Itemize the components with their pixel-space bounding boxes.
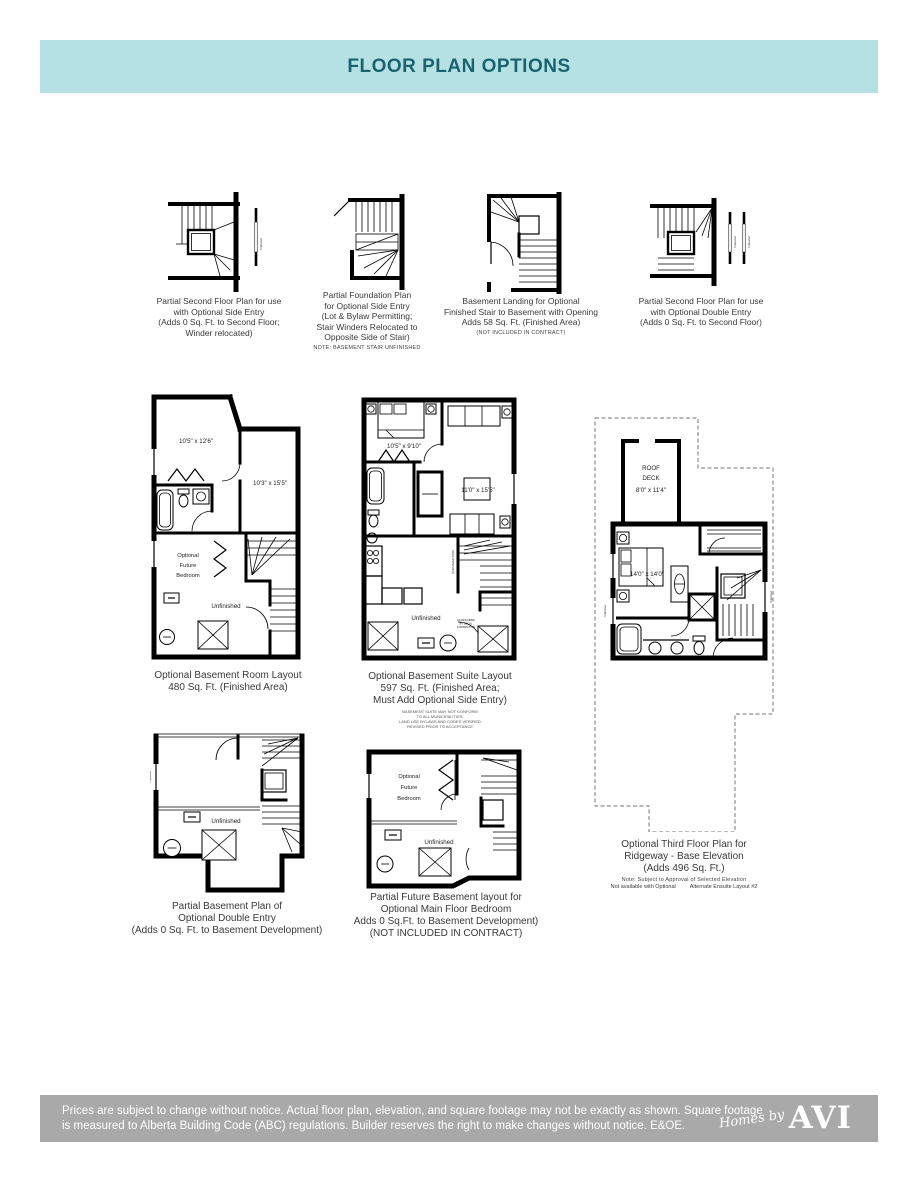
- stair-winders: [491, 197, 519, 222]
- logo-serif-text: AVI: [789, 1100, 852, 1136]
- disclaimer: Prices are subject to change without not…: [62, 1104, 763, 1134]
- room-dim-label: 14'0" x 14'0": [630, 571, 664, 578]
- page-title: FLOOR PLAN OPTIONS: [347, 56, 570, 78]
- floor-drain-icon: [160, 630, 175, 645]
- caption-plan-a: Partial Second Floor Plan for use with O…: [139, 296, 299, 338]
- plan-drawing-second-floor-double-entry: Optional Optional: [650, 198, 755, 286]
- room-dim-label: 10'5" x 9'10": [387, 443, 421, 450]
- stairs: [466, 758, 519, 870]
- svg-text:Optional: Optional: [769, 591, 773, 603]
- svg-text:Optional: Optional: [150, 771, 152, 783]
- plan-drawing-basement-landing: [483, 192, 571, 294]
- partition: [369, 821, 457, 824]
- third-floor-note-1: Note: Subject to Approval of Selected El…: [594, 877, 774, 884]
- svg-text:ROOF: ROOF: [642, 465, 660, 472]
- stairs: [246, 535, 298, 655]
- bed-icon: [378, 402, 424, 438]
- unfinished-label: Unfinished: [211, 603, 241, 610]
- room-dim-label: 10'3" x 15'5": [253, 480, 287, 487]
- stair-winders: [696, 208, 712, 238]
- room-dim-label: 11'0" x 15'5": [461, 487, 494, 494]
- toilet-icon: [178, 489, 189, 507]
- bifold-closet-doors: [168, 469, 204, 481]
- stair-winders: [214, 222, 234, 276]
- plan-drawing-basement-room-layout: Optional 10'5" x 12'6" 10'3" x 15'5" Opt…: [150, 393, 310, 661]
- svg-text:Future: Future: [401, 785, 418, 791]
- svg-text:Bedroom: Bedroom: [397, 796, 421, 802]
- unfinished-label: Unfinished: [424, 839, 454, 846]
- bed-icon: [619, 548, 663, 586]
- door-swing: [192, 511, 212, 531]
- optional-label: Optional: [747, 236, 751, 248]
- svg-text:8'0" x 11'4": 8'0" x 11'4": [636, 487, 666, 494]
- plan-drawing-future-basement-layout: Optional Optional Future Bedroom Unfinis…: [365, 748, 523, 890]
- caption-plan-b: Partial Foundation Plan for Optional Sid…: [287, 290, 447, 352]
- third-floor-note-2: Not available with OptionalAlternate Ens…: [594, 884, 774, 891]
- door-swing: [466, 848, 469, 870]
- window-marker: Optional: [365, 774, 372, 798]
- optional-label: Optional: [733, 236, 737, 248]
- skylight-shaft-icon: [689, 594, 715, 620]
- caption-third-floor: Optional Third Floor Plan for Ridgeway -…: [594, 839, 774, 891]
- toilet-icon: [368, 510, 379, 527]
- caption-double-entry-basement: Partial Basement Plan of Optional Double…: [127, 901, 327, 937]
- caption-plan-d: Partial Second Floor Plan for use with O…: [621, 296, 781, 328]
- window-well-icon: [164, 593, 179, 603]
- open-edge: [158, 734, 300, 737]
- sofa-icon: [448, 406, 512, 426]
- kitchen-counter: [364, 546, 422, 604]
- tub-icon: [157, 490, 173, 530]
- caption-basement-suite-layout: Optional Basement Suite Layout 597 Sq. F…: [350, 671, 530, 729]
- optional-door-marker: Optional: [255, 208, 263, 266]
- stairs: [717, 568, 765, 640]
- door-swing: [424, 444, 442, 462]
- svg-text:Optional: Optional: [603, 605, 607, 617]
- footer-band: Prices are subject to change without not…: [40, 1095, 878, 1142]
- vanity-sinks-icon: [643, 640, 689, 654]
- svg-text:JURISDICTION: JURISDICTION: [457, 625, 475, 629]
- floor-drain-icon: [440, 635, 456, 651]
- furnace-icon: [368, 622, 398, 650]
- floor-drain-icon: [164, 840, 181, 857]
- window-well-icon: [184, 812, 200, 822]
- plan-b-note: NOTE: BASEMENT STAIR UNFINISHED: [287, 345, 447, 352]
- furnace-icon-2: [478, 626, 508, 652]
- dresser-icon: [671, 566, 688, 602]
- svg-text:AS REQUIRED: AS REQUIRED: [457, 618, 475, 622]
- svg-text:Optional: Optional: [177, 553, 199, 559]
- suite-fine-print: BASEMENT SUITE MAY NOT CONFORM TO ALL MU…: [350, 709, 530, 729]
- stair-note: UNFINISHED STAIR: [451, 550, 455, 574]
- unfinished-label: Unfinished: [411, 615, 441, 622]
- furnace-icon: [198, 621, 228, 649]
- furnace-icon: [419, 848, 451, 876]
- roof-deck: ROOF DECK 8'0" x 11'4": [623, 439, 679, 526]
- plan-drawing-second-floor-side-entry: Optional: [168, 192, 272, 292]
- laundry-shelves: [707, 530, 761, 551]
- sink-icon: [193, 489, 209, 504]
- plan-drawing-double-entry-basement: Optional Unfinished: [150, 728, 310, 898]
- caption-future-basement: Partial Future Basement layout for Optio…: [351, 892, 541, 940]
- plan-drawing-third-floor-ridgeway: ROOF DECK 8'0" x 11'4" 14'0" x 14'0": [585, 408, 785, 832]
- svg-text:Optional: Optional: [517, 483, 518, 495]
- svg-text:DECK: DECK: [642, 475, 660, 482]
- stair-landing: [519, 216, 539, 234]
- homes-by-avi-logo: Homes by AVI: [719, 1100, 852, 1136]
- svg-text:BY LOCAL: BY LOCAL: [460, 622, 473, 626]
- plan-drawing-foundation-side-entry: [322, 194, 414, 290]
- door-swing: [491, 242, 513, 266]
- window-marker: Optional: [150, 764, 159, 790]
- plan-drawing-basement-suite-layout: Optional: [360, 396, 518, 662]
- header-band: FLOOR PLAN OPTIONS: [40, 40, 878, 93]
- bifold-closet-doors: [214, 541, 226, 577]
- door-swing: [216, 738, 238, 760]
- toilet-icon: [693, 636, 705, 655]
- svg-text:Future: Future: [180, 563, 197, 569]
- door-swing: [709, 538, 725, 554]
- stair-winders: [358, 250, 398, 276]
- bifold-closet-doors: [439, 760, 453, 800]
- bifold-closet-doors: [378, 450, 410, 462]
- stairs: [262, 738, 302, 852]
- window-well-icon: [385, 830, 401, 840]
- optional-door-marker-2: Optional: [743, 212, 751, 264]
- window-marker: Optional: [511, 474, 518, 504]
- stair-treads: [356, 200, 392, 232]
- stair-treads: [519, 240, 557, 282]
- stair-landing: [356, 234, 398, 250]
- partition: [156, 807, 260, 810]
- unfinished-label: Unfinished: [211, 818, 241, 825]
- room-dim-label: 10'5" x 12'6": [179, 438, 213, 445]
- caption-basement-room-layout: Optional Basement Room Layout 480 Sq. Ft…: [138, 670, 318, 694]
- optional-door-marker-1: Optional: [729, 212, 737, 264]
- floor-plan-options-page: FLOOR PLAN OPTIONS Optional Partial Seco…: [0, 0, 918, 1188]
- optional-label: Optional: [259, 238, 263, 250]
- tub-icon: [367, 468, 384, 504]
- furnace-icon: [202, 830, 236, 860]
- door-swing: [222, 463, 240, 481]
- floor-drain-icon: [377, 856, 393, 872]
- loveseat-icon: [450, 514, 510, 534]
- door-swing: [246, 607, 268, 629]
- tub-icon: [617, 624, 641, 654]
- plan-c-note: (NOT INCLUDED IN CONTRACT): [431, 330, 611, 337]
- caption-plan-c: Basement Landing for Optional Finished S…: [431, 296, 611, 337]
- window-well-icon: [418, 638, 434, 648]
- svg-text:Bedroom: Bedroom: [176, 573, 200, 579]
- logo-script-text: Homes by: [718, 1108, 785, 1132]
- svg-text:Optional: Optional: [398, 774, 420, 780]
